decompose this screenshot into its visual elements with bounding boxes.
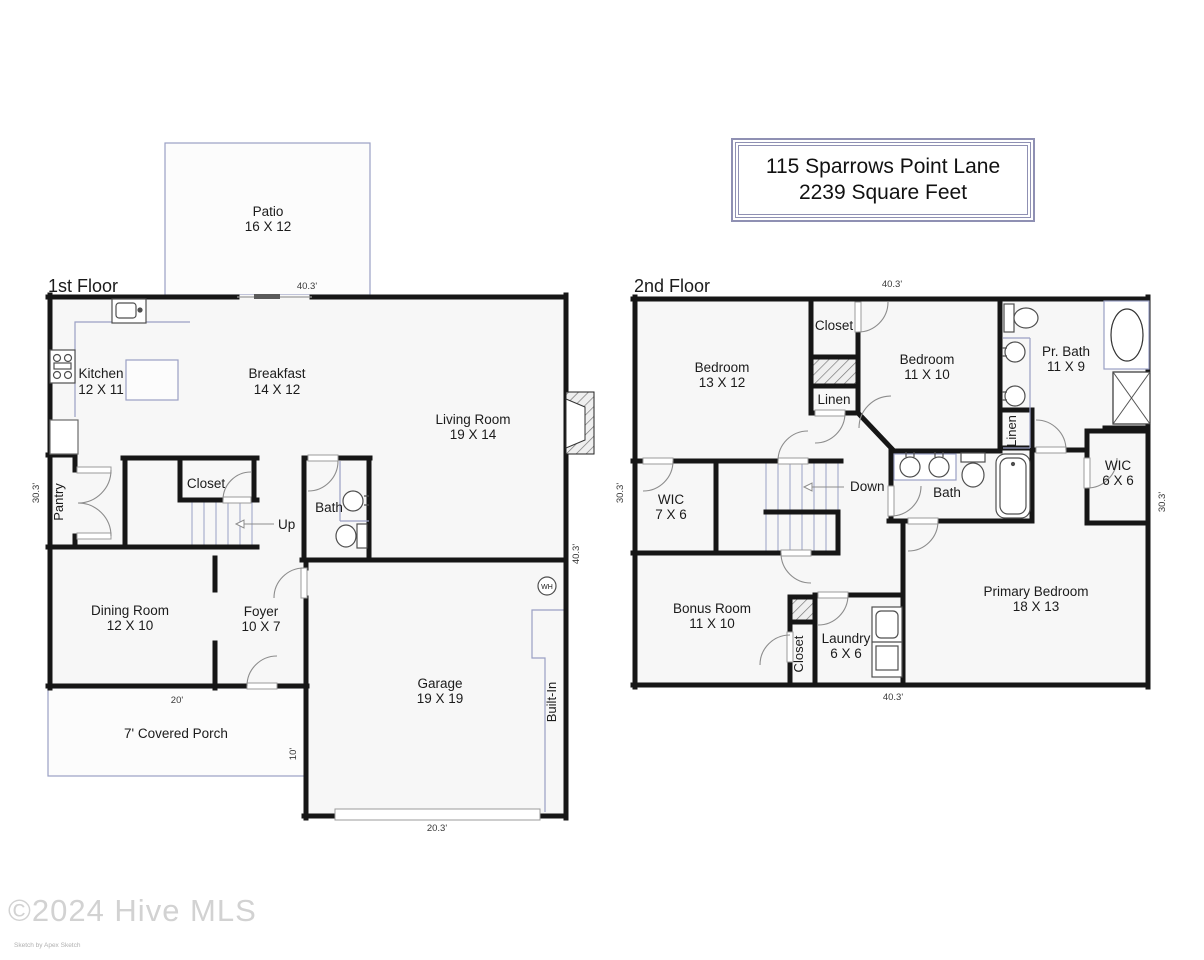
room-size-foyer: 10 X 7 [241,619,280,634]
chase-hatch-bottom [792,599,813,620]
linen-hall-door-leaf [815,410,845,416]
up-label: Up [278,517,295,532]
primary-door-leaf [908,518,938,524]
room-size-laundry: 6 X 6 [830,646,862,661]
square-feet-line: 2239 Square Feet [799,180,967,206]
dim-f2-bottom: 40.3' [883,692,903,703]
stove-panel [54,363,71,369]
wic7-door-leaf [643,458,673,464]
room-label-wic6: WIC [1105,458,1131,473]
bath2-sink-1 [900,457,920,477]
dim-porch-depth: 10' [288,748,299,761]
first-floor-plan: 1st Floor Patio 16 X 12 Kitchen 12 X 11 … [31,143,594,834]
dim-garage-width: 20.3' [427,823,447,834]
bath-sink [343,491,363,511]
second-floor-plan: 2nd Floor Bedroom 13 X 12 Closet Bedroom… [615,276,1168,703]
room-label-bedroom11: Bedroom [900,352,955,367]
kitchen-island [126,360,178,400]
room-label-closet-bottom: Closet [791,635,806,672]
room-label-closet-top: Closet [815,318,854,333]
toilet-bowl [336,525,356,547]
room-label-pantry: Pantry [51,483,66,521]
room-label-living: Living Room [435,412,510,427]
dim-f1-left: 30.3' [31,483,42,503]
mls-watermark: ©2024 Hive MLS [8,893,257,929]
dim-porch-width: 20' [171,695,184,706]
chase-hatch-top [813,359,856,384]
room-label-laundry: Laundry [822,631,871,646]
room-size-kitchen: 12 X 11 [78,382,124,397]
front-door-leaf [247,683,277,689]
sketch-credit: Sketch by Apex Sketch [14,942,80,949]
room-size-breakfast: 14 X 12 [254,382,301,397]
room-label-linen-bath: Linen [1004,415,1019,447]
room-label-bonus: Bonus Room [673,601,751,616]
room-label-built-in: Built-In [544,682,559,722]
room-label-breakfast: Breakfast [248,366,305,381]
closet-top-door-leaf [855,302,861,332]
bath2-tub-inner [1000,458,1026,514]
room-label-closet-f1: Closet [187,476,226,491]
room-label-bath-f1: Bath [315,500,343,515]
room-size-bedroom13: 13 X 12 [699,375,746,390]
room-label-foyer: Foyer [244,604,279,619]
dim-f2-top: 40.3' [882,279,902,290]
bonus-door-leaf [781,550,811,556]
prbath-toilet-tank [1004,304,1014,332]
closet-door-leaf [223,497,251,503]
toilet-tank [357,524,367,548]
dim-f2-right: 30.3' [1157,492,1168,512]
prbath-sink-1 [1005,342,1025,362]
room-label-primary: Primary Bedroom [983,584,1088,599]
laundry-door-leaf [818,592,848,598]
prbath-sink-2 [1005,386,1025,406]
floor1-title: 1st Floor [48,276,118,296]
water-heater-label: WH [541,584,553,591]
room-label-prbath: Pr. Bath [1042,344,1090,359]
garden-tub [1111,309,1143,361]
room-size-patio: 16 X 12 [245,219,292,234]
bath2-door-leaf [888,486,894,516]
title-box-inner-frame: 115 Sparrows Point Lane 2239 Square Feet [738,145,1028,215]
title-box-mid-frame: 115 Sparrows Point Lane 2239 Square Feet [735,142,1031,218]
prbath-toilet-bowl [1014,308,1038,328]
kitchen-faucet [138,308,142,312]
room-label-wic7: WIC [658,492,684,507]
room-size-dining: 12 X 10 [107,618,154,633]
dim-f1-top: 40.3' [297,281,317,292]
bath2-sink-2 [929,457,949,477]
pantry-door-leaf-bottom [77,533,111,539]
room-size-primary: 18 X 13 [1013,599,1060,614]
room-size-bedroom11: 11 X 10 [904,367,950,382]
bath2-toilet-tank [961,453,985,462]
patio-slider-door [254,294,280,299]
room-size-living: 19 X 14 [450,427,497,442]
room-size-wic6: 6 X 6 [1102,473,1134,488]
bath-door-leaf [308,455,338,461]
room-label-linen-hall: Linen [817,392,850,407]
kitchen-sink-bowl [116,303,136,318]
dim-f1-right: 40.3' [571,544,582,564]
room-size-prbath: 11 X 9 [1047,359,1085,374]
bath2-toilet-bowl [962,463,984,487]
dryer-door [876,646,898,670]
room-size-wic7: 7 X 6 [655,507,687,522]
room-label-dining: Dining Room [91,603,169,618]
prbath-door-leaf [1036,447,1066,453]
room-label-bath2: Bath [933,485,961,500]
floor2-title: 2nd Floor [634,276,710,296]
bath2-tub-drain [1012,463,1015,466]
address-title-box: 115 Sparrows Point Lane 2239 Square Feet [731,138,1035,222]
room-label-porch: 7' Covered Porch [124,726,228,741]
room-label-garage: Garage [417,676,462,691]
fireplace-icon [566,392,594,454]
room-label-bedroom13: Bedroom [695,360,750,375]
washer-door [876,611,898,638]
pantry-door-leaf-top [77,467,111,473]
address-line: 115 Sparrows Point Lane [766,154,1000,180]
garage-door-leaf [301,568,307,598]
garage-overhead-door [335,809,540,820]
bedroom13-door-leaf [778,458,808,464]
dim-f2-left: 30.3' [615,483,626,503]
room-size-garage: 19 X 19 [417,691,464,706]
room-size-bonus: 11 X 10 [689,616,735,631]
refrigerator [50,420,78,454]
wic6-door-leaf [1084,458,1090,488]
room-label-kitchen: Kitchen [78,366,123,381]
room-label-patio: Patio [253,204,284,219]
down-label: Down [850,479,885,494]
